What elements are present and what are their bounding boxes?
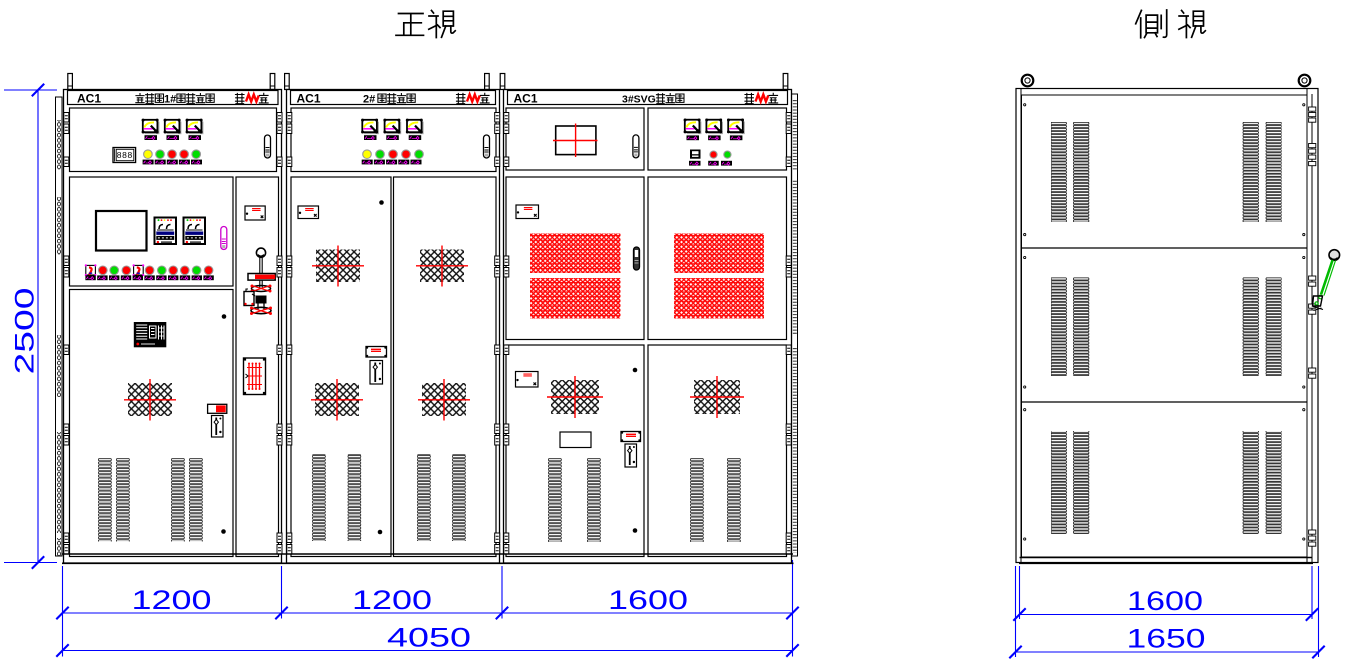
svg-text:AC1: AC1 — [297, 92, 321, 106]
svg-text:1200: 1200 — [352, 585, 432, 615]
svg-text:1600: 1600 — [608, 585, 688, 615]
svg-text:4050: 4050 — [387, 623, 471, 653]
svg-text:AC1: AC1 — [77, 92, 101, 106]
svg-text:2#: 2# — [363, 94, 375, 106]
svg-text:AC1: AC1 — [514, 92, 538, 106]
svg-text:3#SVG: 3#SVG — [622, 94, 656, 106]
svg-text:1200: 1200 — [132, 585, 212, 615]
svg-text:888: 888 — [117, 150, 133, 160]
svg-text:1#: 1# — [164, 94, 176, 106]
svg-text:1650: 1650 — [1127, 624, 1206, 654]
svg-text:1600: 1600 — [1127, 586, 1203, 616]
svg-text:2500: 2500 — [10, 288, 40, 375]
